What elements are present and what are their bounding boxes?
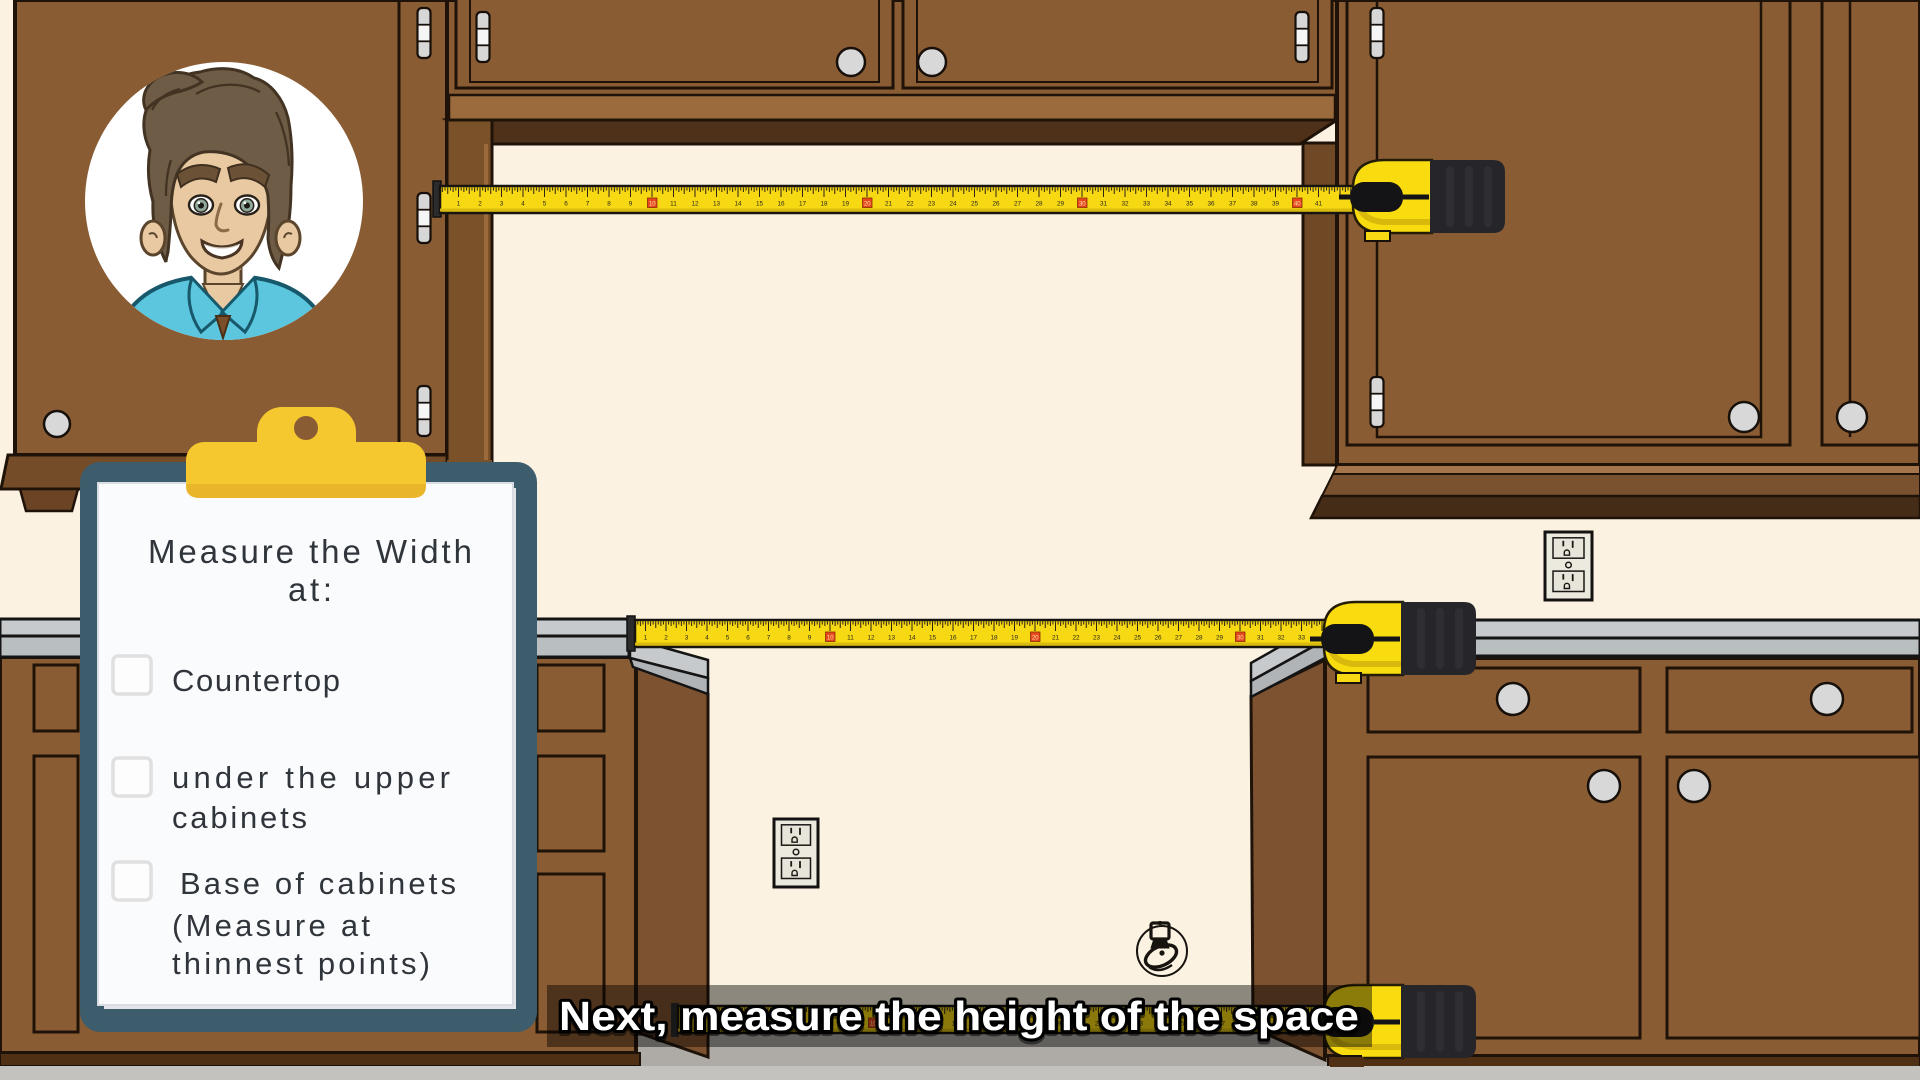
svg-text:Measure the Width: Measure the Width	[148, 533, 472, 570]
svg-text:2: 2	[664, 635, 668, 642]
svg-text:27: 27	[1014, 201, 1022, 208]
svg-text:23: 23	[1093, 635, 1101, 642]
svg-text:28: 28	[1195, 635, 1203, 642]
svg-text:26: 26	[1154, 635, 1162, 642]
svg-text:8: 8	[607, 201, 611, 208]
svg-text:20: 20	[864, 202, 871, 208]
svg-text:37: 37	[1229, 201, 1237, 208]
svg-text:23: 23	[928, 201, 936, 208]
svg-text:30: 30	[1079, 202, 1086, 208]
svg-text:21: 21	[885, 201, 893, 208]
svg-text:25: 25	[1134, 635, 1142, 642]
svg-text:5: 5	[726, 635, 730, 642]
svg-text:5: 5	[543, 201, 547, 208]
svg-text:3: 3	[685, 635, 689, 642]
svg-text:9: 9	[629, 201, 633, 208]
svg-text:8: 8	[787, 635, 791, 642]
svg-text:at:: at:	[288, 571, 332, 608]
svg-text:11: 11	[847, 635, 854, 642]
svg-text:13: 13	[713, 201, 721, 208]
svg-text:25: 25	[971, 201, 979, 208]
svg-text:15: 15	[929, 635, 937, 642]
svg-text:7: 7	[586, 201, 590, 208]
svg-text:35: 35	[1186, 201, 1194, 208]
svg-text:39: 39	[1272, 201, 1280, 208]
svg-text:6: 6	[564, 201, 568, 208]
svg-text:29: 29	[1216, 635, 1224, 642]
svg-text:26: 26	[992, 201, 1000, 208]
svg-text:22: 22	[906, 201, 914, 208]
svg-text:21: 21	[1052, 635, 1060, 642]
svg-text:11: 11	[670, 201, 677, 208]
svg-text:19: 19	[842, 201, 850, 208]
svg-text:20: 20	[1032, 636, 1039, 642]
svg-text:14: 14	[734, 201, 742, 208]
svg-text:2: 2	[478, 201, 482, 208]
svg-text:1: 1	[457, 201, 461, 208]
svg-text:12: 12	[691, 201, 699, 208]
svg-text:4: 4	[705, 635, 709, 642]
svg-text:30: 30	[1237, 636, 1244, 642]
svg-text:38: 38	[1250, 201, 1258, 208]
svg-text:thinnest points): thinnest points)	[172, 946, 430, 981]
svg-text:16: 16	[777, 201, 785, 208]
svg-text:24: 24	[949, 201, 957, 208]
svg-text:10: 10	[649, 202, 656, 208]
svg-text:15: 15	[756, 201, 764, 208]
svg-text:Countertop: Countertop	[172, 663, 340, 698]
svg-text:7: 7	[767, 635, 771, 642]
svg-text:12: 12	[867, 635, 875, 642]
svg-text:28: 28	[1035, 201, 1043, 208]
svg-text:17: 17	[970, 635, 978, 642]
svg-text:22: 22	[1072, 635, 1080, 642]
svg-text:cabinets: cabinets	[172, 800, 307, 835]
svg-text:9: 9	[808, 635, 812, 642]
svg-text:4: 4	[521, 201, 525, 208]
svg-text:33: 33	[1298, 635, 1306, 642]
svg-text:10: 10	[827, 636, 834, 642]
svg-text:24: 24	[1113, 635, 1121, 642]
svg-text:32: 32	[1277, 635, 1285, 642]
svg-text:36: 36	[1207, 201, 1215, 208]
svg-text:Next, measure the height of th: Next, measure the height of the space	[559, 993, 1359, 1039]
svg-text:41: 41	[1315, 201, 1323, 208]
svg-text:3: 3	[500, 201, 504, 208]
svg-text:18: 18	[820, 201, 828, 208]
svg-text:31: 31	[1257, 635, 1265, 642]
svg-text:40: 40	[1294, 202, 1301, 208]
svg-text:34: 34	[1164, 201, 1172, 208]
svg-text:14: 14	[908, 635, 916, 642]
svg-text:6: 6	[746, 635, 750, 642]
svg-text:17: 17	[799, 201, 807, 208]
svg-text:27: 27	[1175, 635, 1183, 642]
svg-text:32: 32	[1121, 201, 1129, 208]
svg-text:31: 31	[1100, 201, 1108, 208]
svg-text:13: 13	[888, 635, 896, 642]
svg-text:1: 1	[644, 635, 648, 642]
svg-text:19: 19	[1011, 635, 1019, 642]
svg-text:29: 29	[1057, 201, 1065, 208]
svg-text:33: 33	[1143, 201, 1151, 208]
svg-text:18: 18	[990, 635, 998, 642]
svg-text:16: 16	[949, 635, 957, 642]
